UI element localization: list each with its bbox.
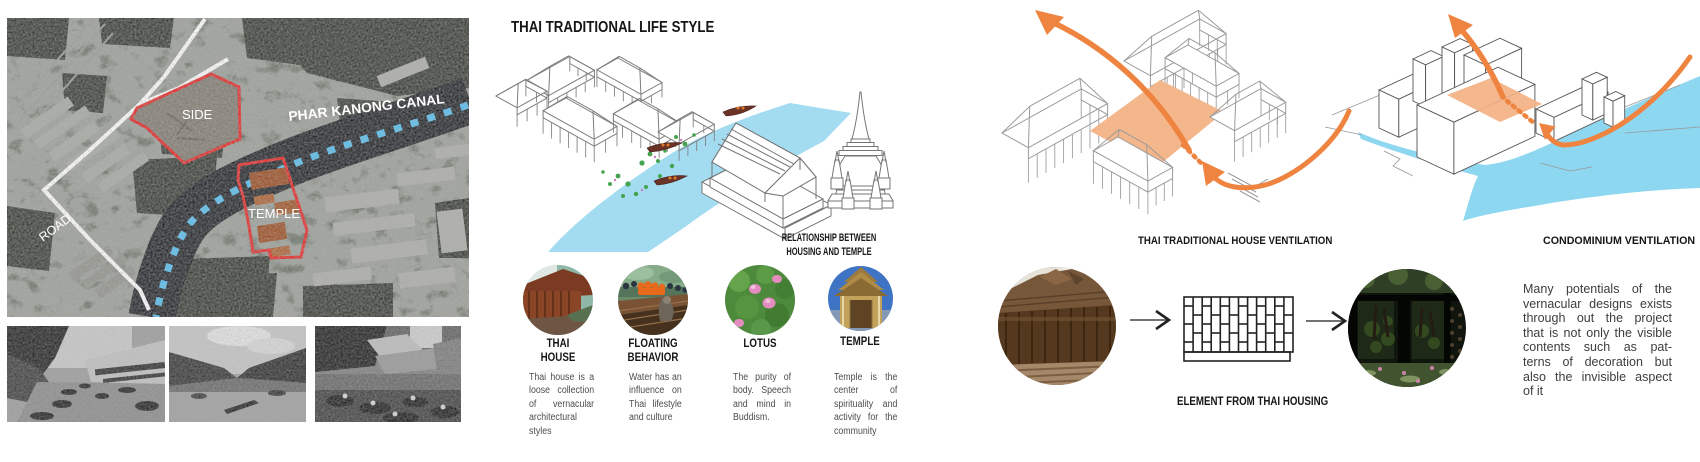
svg-text:SIDE: SIDE	[182, 107, 213, 122]
svg-text:TEMPLE: TEMPLE	[248, 206, 300, 221]
